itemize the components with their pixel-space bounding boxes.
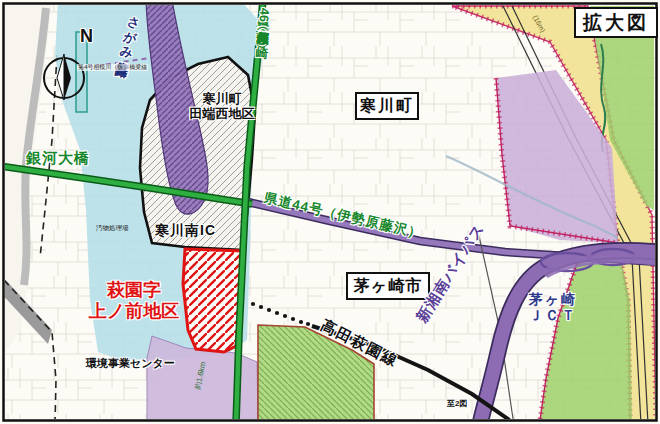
facility-label-kankyo-center: 環境事業センター xyxy=(86,357,175,370)
municipality-label-chigasaki: 茅ヶ崎市 xyxy=(346,272,430,300)
tabata-nishi-line2: 田端西地区 xyxy=(176,107,268,122)
road-label-bridge-plan: 第4号相模川（仮）橋梁線 xyxy=(77,64,148,71)
facility-label-chigasaki-jct: 茅ヶ崎 ＪＣＴ xyxy=(522,291,584,323)
figure-title: 拡大図 xyxy=(574,7,658,38)
chigasaki-jct-line2: ＪＣＴ xyxy=(522,307,584,323)
facility-label-obutsu-plant: 汚物処理場 xyxy=(96,224,129,231)
district-label-hagisono: 萩園字 上ノ前地区 xyxy=(84,280,184,321)
hagisono-uenomae-district xyxy=(183,249,243,352)
tabata-nishi-line1: 寒川町 xyxy=(176,92,268,107)
facility-label-samukawa-minami-ic: 寒川南IC xyxy=(155,222,216,238)
annotation-to-map2: 至2図 xyxy=(447,399,467,408)
chigasaki-jct-line1: 茅ヶ崎 xyxy=(522,291,584,307)
district-label-tabata-nishi: 寒川町 田端西地区 xyxy=(176,92,268,122)
road-label-ginga-bridge: 銀河大橋 xyxy=(26,149,90,166)
enlarged-map: 拡大図 寒川町 茅ヶ崎市 N さがみ縦貫道路 県道46号（相模原茅ケ崎） 銀河大… xyxy=(0,0,660,424)
compass-n-label: N xyxy=(80,26,93,47)
hagisono-line2: 上ノ前地区 xyxy=(84,301,184,322)
municipality-label-samukawa: 寒川町 xyxy=(355,92,419,120)
hagisono-line1: 萩園字 xyxy=(84,280,184,301)
